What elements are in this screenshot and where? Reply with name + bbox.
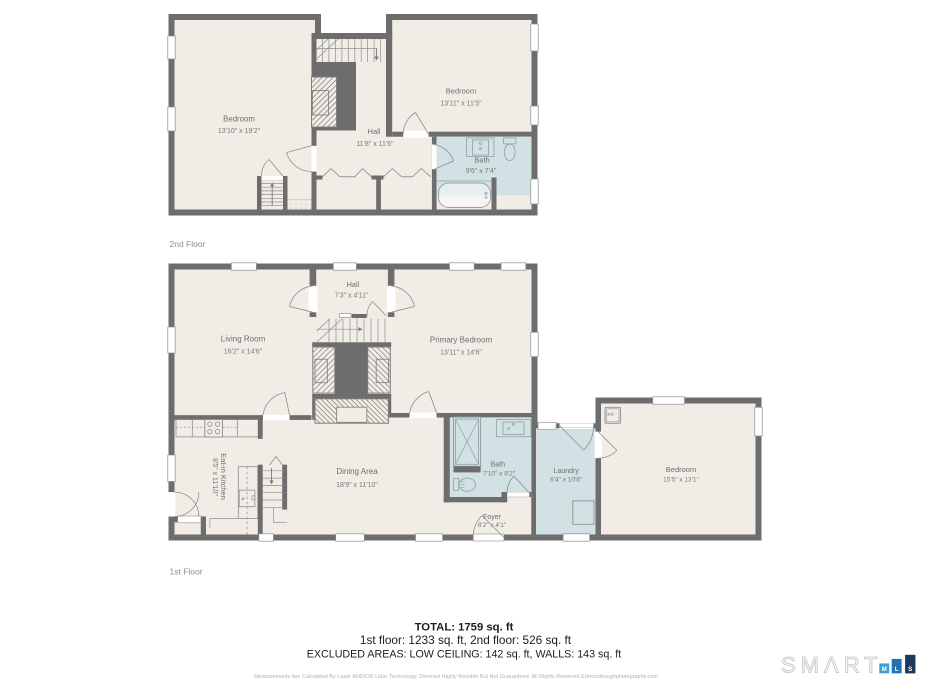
svg-text:Hall: Hall [368, 127, 381, 136]
svg-text:13'11" x 11'5": 13'11" x 11'5" [440, 101, 482, 108]
svg-text:1st Floor: 1st Floor [170, 567, 203, 577]
svg-text:S: S [908, 666, 912, 673]
svg-text:8'5" x 11'10": 8'5" x 11'10" [211, 458, 218, 496]
svg-text:1st floor: 1233 sq. ft, 2nd fl: 1st floor: 1233 sq. ft, 2nd floor: 526 s… [360, 633, 572, 647]
svg-text:8'2" x 4'1": 8'2" x 4'1" [478, 522, 507, 529]
svg-text:13'11" x 14'6": 13'11" x 14'6" [440, 350, 482, 357]
svg-text:Bath: Bath [491, 461, 506, 468]
svg-text:Bath: Bath [474, 156, 489, 165]
svg-text:Bedroom: Bedroom [223, 115, 255, 124]
svg-text:13'10" x 19'2": 13'10" x 19'2" [218, 128, 261, 135]
svg-text:Living Room: Living Room [221, 335, 266, 344]
svg-text:6'4" x 10'8": 6'4" x 10'8" [550, 476, 583, 483]
svg-text:Eat-in Kitchen: Eat-in Kitchen [219, 453, 228, 500]
svg-text:15'5" x 13'1": 15'5" x 13'1" [663, 476, 699, 483]
svg-text:7'10" x 8'2": 7'10" x 8'2" [483, 470, 516, 477]
svg-text:16'2" x 14'6": 16'2" x 14'6" [224, 349, 263, 356]
svg-text:Foyer: Foyer [483, 514, 502, 521]
svg-text:Measurements Are Calculated By: Measurements Are Calculated By Laser AND… [254, 674, 658, 680]
svg-text:9'6" x 7'4": 9'6" x 7'4" [466, 168, 497, 175]
svg-text:11'8" x 11'6": 11'8" x 11'6" [356, 141, 394, 148]
svg-text:M: M [882, 666, 887, 673]
svg-text:EXCLUDED AREAS: LOW CEILING: 1: EXCLUDED AREAS: LOW CEILING: 142 sq. ft,… [307, 648, 621, 660]
svg-text:Hall: Hall [346, 280, 359, 289]
svg-text:Dining Area: Dining Area [336, 467, 378, 476]
svg-text:Laundry: Laundry [554, 468, 580, 475]
svg-text:2nd Floor: 2nd Floor [170, 239, 206, 249]
svg-text:7'3" x 4'11": 7'3" x 4'11" [335, 293, 369, 300]
svg-text:Bedroom: Bedroom [446, 87, 476, 96]
svg-text:18'9" x 11'10": 18'9" x 11'10" [336, 482, 378, 489]
svg-text:SMΛRT: SMΛRT [781, 653, 883, 678]
svg-text:L: L [895, 666, 899, 673]
svg-text:Primary Bedroom: Primary Bedroom [430, 336, 493, 345]
svg-text:Bedroom: Bedroom [666, 465, 696, 474]
svg-text:TOTAL: 1759 sq. ft: TOTAL: 1759 sq. ft [415, 622, 514, 634]
